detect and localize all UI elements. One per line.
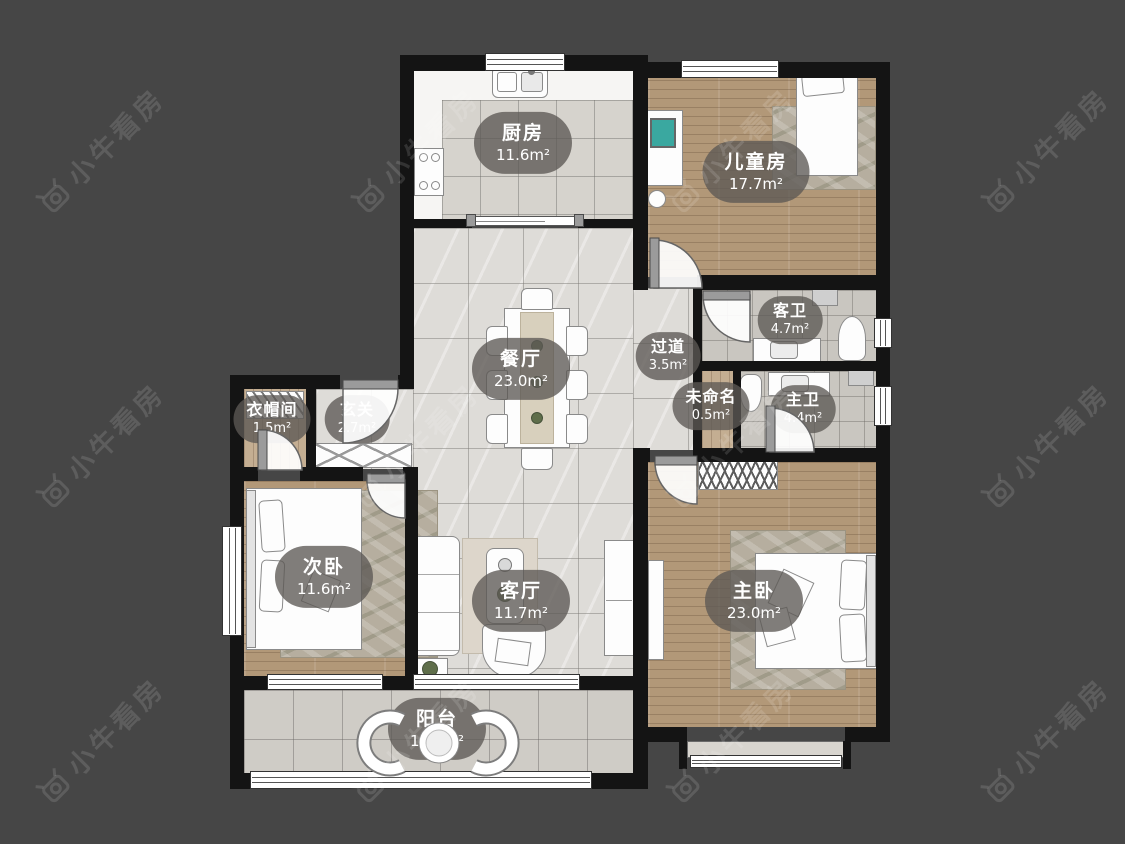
- wall-segment: [633, 448, 648, 787]
- kids-window: [681, 60, 779, 78]
- wall-segment: [700, 361, 890, 371]
- room-label-second-bedroom: 次卧11.6m²: [275, 546, 373, 608]
- watermark: 小牛看房: [973, 373, 1117, 517]
- watermark: 小牛看房: [973, 78, 1117, 222]
- armchair-pillow: [494, 638, 531, 666]
- watermark-text: 小牛看房: [57, 668, 172, 783]
- slider-end-cap: [466, 214, 476, 227]
- master-headboard: [866, 555, 876, 667]
- wall-segment: [693, 288, 702, 462]
- burner: [419, 181, 428, 190]
- xiaoniu-logo-icon: [346, 174, 391, 219]
- wall-segment: [383, 676, 415, 690]
- room-label-balcony: 阳台11.5m²: [388, 698, 486, 760]
- wall-segment: [592, 773, 648, 789]
- living-balcony-slider: [413, 674, 580, 690]
- living-tv-cabinet-divider: [606, 600, 632, 601]
- wall-segment: [230, 676, 267, 690]
- kitchen-stove: [414, 148, 444, 196]
- entry-door-leaf: [343, 380, 398, 389]
- second-bedroom-window: [222, 526, 242, 636]
- master-pillow: [839, 559, 868, 610]
- xiaoniu-logo-icon: [976, 174, 1021, 219]
- burner: [431, 181, 440, 190]
- dining-chair: [486, 414, 508, 444]
- room-label-cloakroom: 衣帽间1.5m²: [233, 395, 310, 443]
- room-label-kids: 儿童房17.7m²: [702, 141, 809, 203]
- room-label-master-bath: 主卫4.4m²: [771, 385, 836, 433]
- kitchen-sliding-door: [470, 216, 580, 226]
- master-bay-window: [690, 755, 842, 768]
- kitchen-sink-basin-left: [497, 72, 517, 92]
- wall-segment: [679, 741, 687, 769]
- wall-segment: [700, 448, 890, 462]
- slider-track-line: [475, 221, 545, 222]
- xiaoniu-logo-icon: [31, 469, 76, 514]
- wall-segment: [230, 773, 250, 789]
- watermark-text: 小牛看房: [1002, 668, 1117, 783]
- kids-monitor: [650, 118, 676, 148]
- slider-end-cap: [574, 214, 584, 227]
- dining-chair: [566, 414, 588, 444]
- burner: [431, 153, 440, 162]
- dining-chair: [566, 326, 588, 356]
- wall-segment: [876, 455, 890, 742]
- guest-bath-toilet: [838, 316, 866, 361]
- master-tv-cabinet: [648, 560, 664, 660]
- wall-segment: [580, 676, 648, 690]
- room-label-foyer: 玄关2.7m²: [325, 395, 390, 443]
- second-bedroom-headboard: [246, 490, 256, 648]
- kitchen-sink-basin-right: [521, 72, 543, 92]
- wall-segment: [405, 467, 418, 690]
- master-bath-window: [874, 386, 892, 426]
- watermark: 小牛看房: [28, 78, 172, 222]
- room-label-corridor: 过道3.5m²: [636, 332, 701, 380]
- wall-segment: [230, 375, 340, 389]
- watermark-text: 小牛看房: [1002, 373, 1117, 488]
- xiaoniu-logo-icon: [31, 764, 76, 809]
- watermark-text: 小牛看房: [57, 78, 172, 193]
- dining-chair: [521, 448, 553, 470]
- guest-bath-window: [874, 318, 892, 348]
- room-label-living: 客厅11.7m²: [472, 570, 570, 632]
- watermark-text: 小牛看房: [57, 373, 172, 488]
- xiaoniu-logo-icon: [976, 469, 1021, 514]
- wall-segment: [843, 741, 851, 769]
- wall-segment: [633, 55, 648, 290]
- room-label-dining: 餐厅23.0m²: [472, 338, 570, 400]
- balcony-window: [250, 771, 592, 789]
- wall-segment: [697, 275, 890, 290]
- room-label-master-bedroom: 主卧23.0m²: [705, 570, 803, 632]
- second-bedroom-balcony-window: [267, 674, 383, 690]
- watermark-text: 小牛看房: [1002, 78, 1117, 193]
- second-bedroom-pillow: [258, 499, 286, 553]
- kids-floor-lamp: [648, 190, 666, 208]
- master-pillow: [839, 613, 867, 662]
- room-label-unnamed: 未命名0.5m²: [672, 382, 749, 430]
- living-tv-cabinet: [604, 540, 634, 656]
- dining-plant: [531, 412, 543, 424]
- burner: [419, 153, 428, 162]
- wall-segment: [230, 467, 258, 481]
- room-label-kitchen: 厨房11.6m²: [474, 112, 572, 174]
- wall-segment: [578, 219, 635, 228]
- xiaoniu-logo-icon: [31, 174, 76, 219]
- watermark: 小牛看房: [28, 373, 172, 517]
- watermark: 小牛看房: [973, 668, 1117, 812]
- dining-chair: [521, 288, 553, 310]
- watermark: 小牛看房: [28, 668, 172, 812]
- foyer-shoe-cabinet: [314, 443, 412, 468]
- wall-segment: [412, 219, 472, 228]
- kitchen-window: [485, 53, 565, 71]
- room-label-guest-bath: 客卫4.7m²: [758, 296, 823, 344]
- xiaoniu-logo-icon: [661, 764, 706, 809]
- wall-segment: [398, 375, 414, 389]
- wall-segment: [648, 727, 687, 742]
- wall-segment: [300, 467, 363, 481]
- floorplan-canvas: 厨房11.6m² 儿童房17.7m² 客卫4.7m² 过道3.5m² 餐厅23.…: [0, 0, 1125, 844]
- xiaoniu-logo-icon: [976, 764, 1021, 809]
